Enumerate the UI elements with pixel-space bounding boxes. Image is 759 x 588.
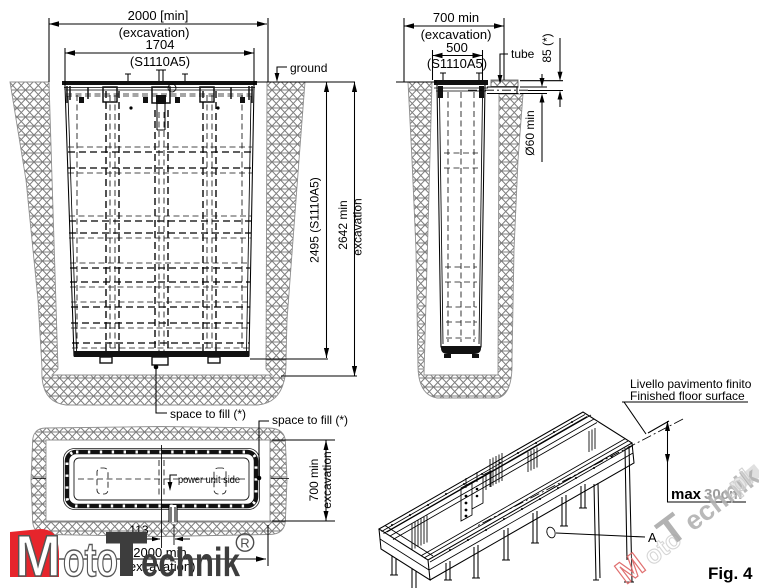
svg-text:500: 500	[446, 40, 468, 55]
svg-text:echnik: echnik	[141, 539, 240, 585]
svg-text:space to fill (*): space to fill (*)	[272, 413, 348, 427]
svg-text:2495 (S1110A5): 2495 (S1110A5)	[308, 177, 322, 263]
svg-text:tube: tube	[511, 47, 535, 61]
svg-text:700 min: 700 min	[433, 10, 479, 25]
svg-text:85 (*): 85 (*)	[540, 33, 554, 62]
svg-text:1704: 1704	[146, 37, 175, 52]
svg-text:M: M	[15, 524, 61, 588]
svg-text:R: R	[240, 536, 249, 551]
svg-text:Ø60 min: Ø60 min	[523, 110, 537, 155]
svg-text:Fig. 4: Fig. 4	[708, 564, 753, 583]
svg-text:2642 min: 2642 min	[336, 200, 350, 249]
svg-text:space to fill (*): space to fill (*)	[170, 407, 246, 421]
svg-text:700 min: 700 min	[307, 459, 321, 502]
svg-text:power unit side: power unit side	[178, 474, 240, 486]
svg-text:ground: ground	[290, 61, 327, 75]
svg-text:Finished floor surface: Finished floor surface	[630, 389, 745, 403]
svg-text:(S1110A5): (S1110A5)	[427, 56, 487, 71]
svg-text:excavation: excavation	[351, 198, 365, 255]
svg-text:excavation: excavation	[320, 451, 334, 508]
svg-text:(S1110A5): (S1110A5)	[130, 54, 190, 69]
svg-text:2000 [min]: 2000 [min]	[128, 8, 189, 23]
